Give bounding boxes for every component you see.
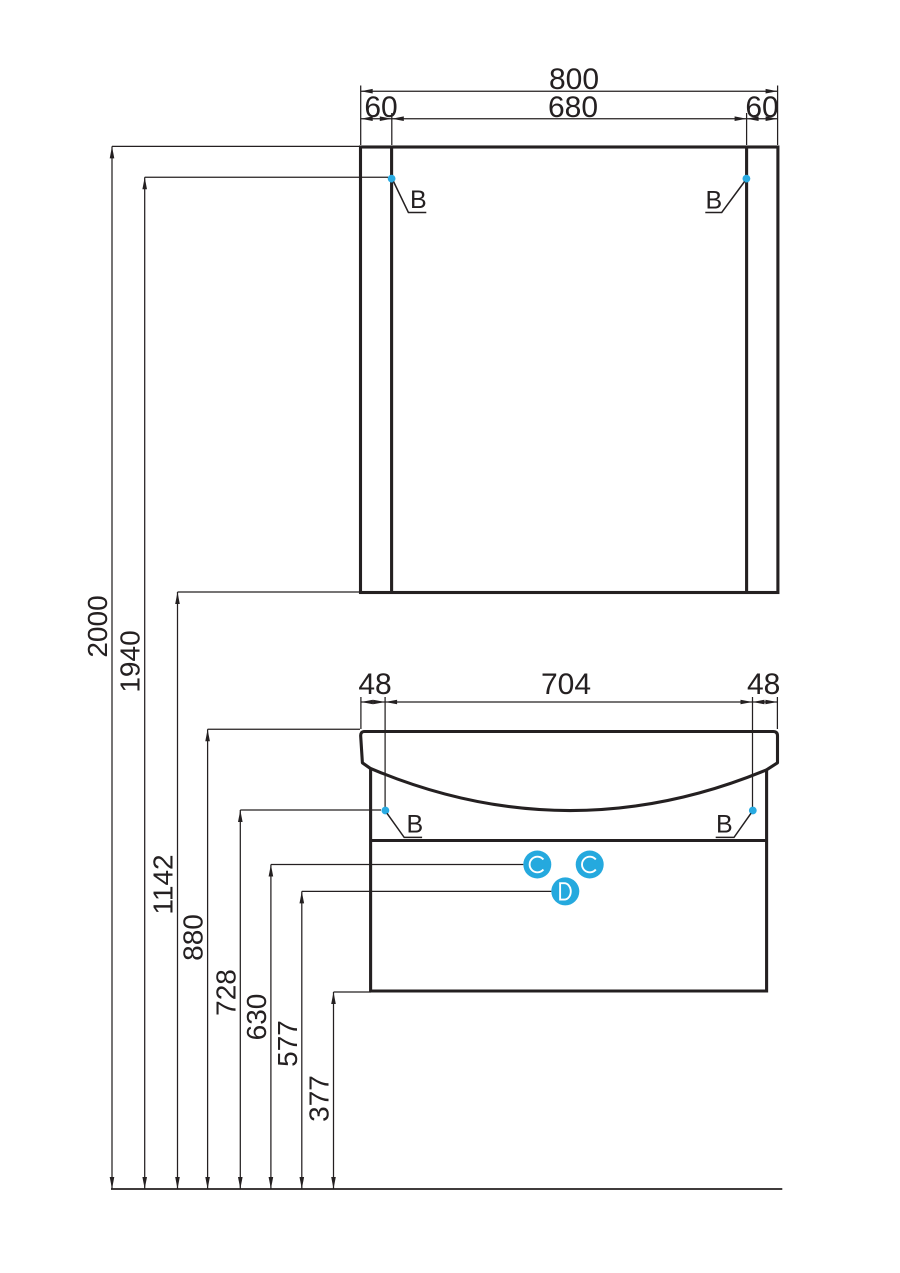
svg-text:680: 680 [548, 91, 598, 124]
svg-text:377: 377 [304, 1075, 335, 1122]
svg-text:630: 630 [241, 994, 272, 1041]
svg-text:B: B [407, 811, 424, 839]
svg-text:2000: 2000 [82, 595, 113, 657]
svg-text:880: 880 [178, 914, 209, 961]
svg-text:B: B [410, 186, 427, 214]
svg-text:B: B [716, 811, 733, 839]
svg-text:48: 48 [747, 668, 780, 701]
svg-text:1940: 1940 [115, 630, 146, 692]
svg-text:728: 728 [210, 969, 241, 1016]
svg-text:60: 60 [745, 91, 778, 124]
svg-text:704: 704 [541, 668, 591, 701]
svg-text:B: B [706, 187, 723, 215]
svg-text:577: 577 [272, 1020, 303, 1067]
svg-text:48: 48 [358, 668, 391, 701]
svg-text:60: 60 [364, 91, 397, 124]
svg-text:1142: 1142 [148, 854, 179, 914]
